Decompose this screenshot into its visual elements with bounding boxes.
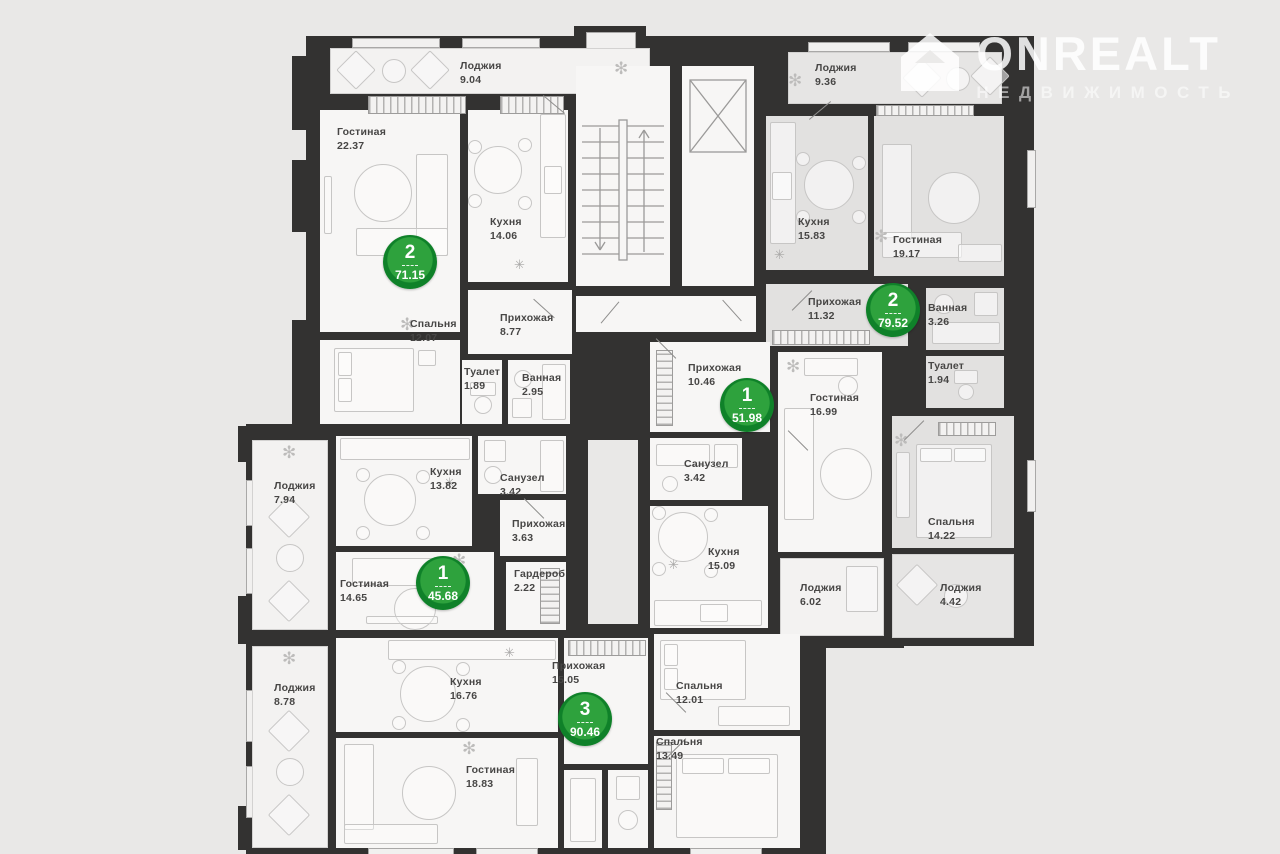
furniture-decor: 6.02 bbox=[800, 596, 821, 608]
apartment-total-area: 90.46 bbox=[570, 726, 600, 738]
window bbox=[1027, 460, 1036, 512]
furniture-decor: Туалет bbox=[928, 360, 964, 372]
plant-icon: ✻ bbox=[614, 60, 628, 77]
furniture-decor: 22.37 bbox=[337, 140, 364, 152]
room-bath bbox=[608, 770, 648, 848]
furniture-decor bbox=[336, 50, 376, 90]
furniture-decor bbox=[568, 640, 646, 656]
badge-divider bbox=[402, 265, 418, 266]
room-loggia bbox=[252, 440, 328, 630]
room-label: Гостиная19.17 bbox=[893, 234, 942, 261]
furniture-decor bbox=[820, 448, 872, 500]
vent-icon: ✳ bbox=[774, 248, 785, 261]
furniture-decor: 14.06 bbox=[490, 230, 517, 242]
wardrobe bbox=[938, 422, 996, 436]
furniture-decor: Гостиная bbox=[810, 392, 859, 404]
furniture-decor bbox=[784, 408, 814, 520]
window bbox=[476, 848, 538, 854]
room-label: Ванная2.95 bbox=[522, 372, 561, 399]
room-label: Прихожая11.32 bbox=[808, 296, 861, 323]
furniture-decor: 19.17 bbox=[893, 248, 920, 260]
stairwell bbox=[576, 66, 670, 286]
room-label: Лоджия6.02 bbox=[800, 582, 842, 609]
furniture-decor: 1.89 bbox=[464, 380, 485, 392]
furniture-decor: Кухня bbox=[450, 676, 482, 688]
furniture-decor bbox=[920, 448, 952, 462]
vent-icon: ✳ bbox=[668, 558, 679, 571]
furniture-decor bbox=[652, 562, 666, 576]
furniture-decor bbox=[928, 172, 980, 224]
furniture-decor bbox=[268, 794, 310, 836]
window bbox=[462, 38, 540, 48]
furniture-decor bbox=[954, 448, 986, 462]
window bbox=[352, 38, 440, 48]
furniture-decor: 1.94 bbox=[928, 374, 949, 386]
furniture-decor: 9.04 bbox=[460, 74, 481, 86]
furniture-decor bbox=[544, 166, 562, 194]
furniture-decor bbox=[276, 758, 304, 786]
room-label: Санузел3.42 bbox=[500, 472, 545, 499]
furniture-decor bbox=[664, 644, 678, 666]
furniture-decor: Ванная bbox=[522, 372, 561, 384]
furniture-decor bbox=[616, 776, 640, 800]
badge-divider bbox=[435, 586, 451, 587]
house-icon bbox=[898, 30, 962, 94]
vent-icon: ✳ bbox=[514, 258, 525, 271]
furniture-decor: 3.42 bbox=[500, 486, 521, 498]
room-loggia bbox=[252, 646, 328, 848]
apartment-rooms-count: 1 bbox=[742, 386, 753, 405]
room-label: Гостиная18.83 bbox=[466, 764, 515, 791]
plant-icon: ✻ bbox=[788, 72, 802, 89]
furniture-decor bbox=[344, 824, 438, 844]
furniture-decor: 9.36 bbox=[815, 76, 836, 88]
furniture-decor bbox=[852, 156, 866, 170]
furniture-decor bbox=[958, 244, 1002, 262]
logo-subtitle: НЕДВИЖИМОСТЬ bbox=[976, 83, 1240, 103]
furniture-decor: Санузел bbox=[500, 472, 545, 484]
furniture-decor: Ванная bbox=[928, 302, 967, 314]
plant-icon: ✻ bbox=[462, 740, 476, 757]
badge-divider bbox=[739, 408, 755, 409]
furniture-decor bbox=[474, 146, 522, 194]
furniture-decor bbox=[512, 398, 532, 418]
furniture-decor bbox=[340, 438, 470, 460]
furniture-decor bbox=[468, 194, 482, 208]
furniture-decor: Санузел bbox=[684, 458, 729, 470]
furniture-decor: 15.09 bbox=[708, 560, 735, 572]
room-label: Лоджия4.42 bbox=[940, 582, 982, 609]
furniture-decor: Кухня bbox=[490, 216, 522, 228]
furniture-decor: 12.07 bbox=[410, 332, 437, 344]
furniture-decor bbox=[276, 544, 304, 572]
furniture-decor bbox=[324, 176, 332, 234]
furniture-decor bbox=[704, 508, 718, 522]
furniture-decor bbox=[268, 710, 310, 752]
furniture-decor bbox=[652, 506, 666, 520]
furniture-decor: Спальня bbox=[410, 318, 457, 330]
furniture-decor bbox=[718, 706, 790, 726]
furniture-decor bbox=[852, 210, 866, 224]
apartment-badge[interactable]: 2 71.15 bbox=[383, 235, 437, 289]
room-label: Гардероб2.22 bbox=[514, 568, 565, 595]
window-sill bbox=[368, 96, 466, 114]
furniture-decor bbox=[570, 778, 596, 842]
furniture-decor: 18.83 bbox=[466, 778, 493, 790]
furniture-decor bbox=[595, 128, 605, 250]
wall-pillar bbox=[292, 320, 306, 428]
furniture-decor bbox=[416, 526, 430, 540]
room-label: Лоджия9.36 bbox=[815, 62, 857, 89]
plant-icon: ✻ bbox=[786, 358, 800, 375]
furniture-decor bbox=[690, 80, 746, 152]
onrealt-logo: ONREALT НЕДВИЖИМОСТЬ bbox=[898, 30, 1240, 103]
furniture-decor bbox=[882, 144, 912, 238]
room-label: Спальня13.49 bbox=[656, 736, 703, 763]
furniture-decor: 14.22 bbox=[928, 530, 955, 542]
furniture-decor bbox=[728, 758, 770, 774]
furniture-decor bbox=[804, 160, 854, 210]
furniture-decor bbox=[356, 526, 370, 540]
furniture-decor: 3.63 bbox=[512, 532, 533, 544]
apartment-rooms-count: 2 bbox=[405, 243, 416, 262]
furniture-decor: Спальня bbox=[656, 736, 703, 748]
window bbox=[1027, 150, 1036, 208]
furniture-decor: Спальня bbox=[676, 680, 723, 692]
furniture-decor bbox=[456, 662, 470, 676]
furniture-decor bbox=[772, 172, 792, 200]
room-label: Кухня13.82 bbox=[430, 466, 462, 493]
furniture-decor: Гостиная bbox=[466, 764, 515, 776]
furniture-decor: Кухня bbox=[798, 216, 830, 228]
furniture-decor: 7.94 bbox=[274, 494, 295, 506]
furniture-decor: Кухня bbox=[430, 466, 462, 478]
apartment-rooms-count: 3 bbox=[580, 700, 591, 719]
furniture-decor bbox=[354, 164, 412, 222]
room-label: Кухня15.09 bbox=[708, 546, 740, 573]
furniture-decor: 15.83 bbox=[798, 230, 825, 242]
apartment-total-area: 79.52 bbox=[878, 317, 908, 329]
room-living bbox=[778, 352, 882, 552]
room-kitchen bbox=[336, 638, 558, 732]
elevator-lobby bbox=[682, 66, 754, 286]
plant-icon: ✻ bbox=[282, 444, 296, 461]
furniture-decor: 3.26 bbox=[928, 316, 949, 328]
logo-brand: ONREALT bbox=[976, 30, 1240, 77]
furniture-decor bbox=[639, 130, 649, 252]
furniture-decor bbox=[796, 152, 810, 166]
furniture-decor: 15.05 bbox=[552, 674, 579, 686]
furniture-decor bbox=[392, 716, 406, 730]
furniture-decor: Туалет bbox=[464, 366, 500, 378]
logo-text: ONREALT НЕДВИЖИМОСТЬ bbox=[976, 30, 1240, 103]
furniture-decor bbox=[619, 120, 627, 260]
furniture-decor bbox=[468, 140, 482, 154]
furniture-decor bbox=[356, 468, 370, 482]
furniture-decor bbox=[896, 564, 938, 606]
furniture-decor bbox=[690, 80, 746, 152]
room-label: Туалет1.94 bbox=[928, 360, 964, 387]
furniture-decor: 14.65 bbox=[340, 592, 367, 604]
badge-divider bbox=[577, 722, 593, 723]
furniture-decor: 16.99 bbox=[810, 406, 837, 418]
furniture-decor: 2.22 bbox=[514, 582, 535, 594]
furniture-decor bbox=[700, 604, 728, 622]
room-label: Прихожая15.05 bbox=[552, 660, 605, 687]
furniture-decor bbox=[416, 470, 430, 484]
room-label: Прихожая3.63 bbox=[512, 518, 565, 545]
furniture-decor: 3.42 bbox=[684, 472, 705, 484]
furniture-decor: 8.77 bbox=[500, 326, 521, 338]
plant-icon: ✻ bbox=[874, 228, 888, 245]
wall-pillar bbox=[292, 160, 306, 232]
furniture-decor: Лоджия bbox=[815, 62, 857, 74]
window bbox=[808, 42, 890, 52]
room-label: Спальня12.07 bbox=[410, 318, 457, 345]
furniture-decor: Гостиная bbox=[337, 126, 386, 138]
furniture-decor bbox=[484, 440, 506, 462]
furniture-decor: Лоджия bbox=[800, 582, 842, 594]
wall-pillar bbox=[238, 596, 250, 644]
furniture-decor: Гостиная bbox=[340, 578, 389, 590]
stairs-icon bbox=[576, 66, 670, 286]
common-hallway bbox=[576, 296, 756, 332]
furniture-decor bbox=[382, 59, 406, 83]
apartment-badge[interactable]: 3 90.46 bbox=[558, 692, 612, 746]
furniture-decor: 2.95 bbox=[522, 386, 543, 398]
room-label: Кухня14.06 bbox=[490, 216, 522, 243]
room-label: Гостиная16.99 bbox=[810, 392, 859, 419]
furniture-decor bbox=[338, 378, 352, 402]
furniture-decor: 11.32 bbox=[808, 310, 835, 322]
plant-icon: ✻ bbox=[282, 650, 296, 667]
furniture-decor bbox=[364, 474, 416, 526]
room-label: Ванная3.26 bbox=[928, 302, 967, 329]
furniture-decor bbox=[392, 660, 406, 674]
wall-pillar bbox=[238, 426, 250, 462]
apartment-total-area: 45.68 bbox=[428, 590, 458, 602]
apartment-badge[interactable]: 1 45.68 bbox=[416, 556, 470, 610]
apartment-total-area: 71.15 bbox=[395, 269, 425, 281]
furniture-decor bbox=[268, 580, 310, 622]
furniture-decor: 13.49 bbox=[656, 750, 683, 762]
room-label: Туалет1.89 bbox=[464, 366, 500, 393]
furniture-decor bbox=[846, 566, 878, 612]
furniture-decor bbox=[456, 718, 470, 732]
wall-pillar bbox=[292, 56, 306, 130]
furniture-decor: 13.82 bbox=[430, 480, 457, 492]
wardrobe bbox=[656, 350, 673, 426]
furniture-decor bbox=[582, 120, 664, 260]
room-label: Спальня14.22 bbox=[928, 516, 975, 543]
furniture-decor: Прихожая bbox=[688, 362, 741, 374]
vent-icon: ✳ bbox=[504, 646, 515, 659]
badge-divider bbox=[885, 313, 901, 314]
apartment-badge[interactable]: 1 51.98 bbox=[720, 378, 774, 432]
furniture-decor bbox=[974, 292, 998, 316]
furniture-decor bbox=[518, 138, 532, 152]
furniture-decor: 16.76 bbox=[450, 690, 477, 702]
furniture-decor bbox=[474, 396, 492, 414]
furniture-decor: Прихожая bbox=[552, 660, 605, 672]
apartment-total-area: 51.98 bbox=[732, 412, 762, 424]
room-label: Кухня15.83 bbox=[798, 216, 830, 243]
elevator-icon bbox=[682, 66, 754, 286]
furniture-decor bbox=[402, 766, 456, 820]
furniture-decor bbox=[804, 358, 858, 376]
apartment-badge[interactable]: 2 79.52 bbox=[866, 283, 920, 337]
room-label: Санузел3.42 bbox=[684, 458, 729, 485]
furniture-decor: 10.46 bbox=[688, 376, 715, 388]
room-label: Лоджия9.04 bbox=[460, 60, 502, 87]
furniture-decor: 4.42 bbox=[940, 596, 961, 608]
furniture-decor: Лоджия bbox=[274, 682, 316, 694]
furniture-decor: Прихожая bbox=[500, 312, 553, 324]
furniture-decor: Гостиная bbox=[893, 234, 942, 246]
plant-icon: ✻ bbox=[894, 432, 908, 449]
furniture-decor bbox=[896, 452, 910, 518]
furniture-decor bbox=[658, 512, 708, 562]
furniture-decor: Прихожая bbox=[808, 296, 861, 308]
furniture-decor: Лоджия bbox=[460, 60, 502, 72]
window bbox=[368, 848, 454, 854]
window bbox=[690, 848, 762, 854]
furniture-decor: Спальня bbox=[928, 516, 975, 528]
furniture-decor bbox=[338, 352, 352, 376]
furniture-decor bbox=[518, 196, 532, 210]
room-label: Лоджия8.78 bbox=[274, 682, 316, 709]
furniture-decor bbox=[400, 666, 456, 722]
furniture-decor bbox=[516, 758, 538, 826]
furniture-decor bbox=[618, 810, 638, 830]
furniture-decor bbox=[418, 350, 436, 366]
room-label: Спальня12.01 bbox=[676, 680, 723, 707]
room-label: Гостиная14.65 bbox=[340, 578, 389, 605]
furniture-decor bbox=[344, 744, 374, 830]
room-label: Кухня16.76 bbox=[450, 676, 482, 703]
room-living bbox=[336, 738, 558, 848]
furniture-decor bbox=[410, 50, 450, 90]
window-sill bbox=[876, 105, 974, 116]
room-label: Прихожая8.77 bbox=[500, 312, 553, 339]
furniture-decor: 8.78 bbox=[274, 696, 295, 708]
room-label: Лоджия7.94 bbox=[274, 480, 316, 507]
room-bath bbox=[564, 770, 602, 848]
furniture-decor bbox=[662, 476, 678, 492]
wardrobe bbox=[772, 330, 870, 345]
apartment-rooms-count: 1 bbox=[438, 564, 449, 583]
room-bedroom bbox=[320, 340, 460, 424]
furniture-decor: Кухня bbox=[708, 546, 740, 558]
floor-plan: ✻ ✻ ✻ ✻ ✻ ✻ ✻ ✻ ✻ ✻ ✳ ✳ ✳ ✳ ✳ Лоджия9.04… bbox=[0, 0, 1280, 854]
furniture-decor: Прихожая bbox=[512, 518, 565, 530]
room-label: Гостиная22.37 bbox=[337, 126, 386, 153]
apartment-rooms-count: 2 bbox=[888, 291, 899, 310]
furniture-decor: Лоджия bbox=[274, 480, 316, 492]
furniture-decor: Гардероб bbox=[514, 568, 565, 580]
furniture-decor: 12.01 bbox=[676, 694, 703, 706]
furniture-decor bbox=[366, 616, 438, 624]
furniture-decor bbox=[388, 640, 556, 660]
furniture-decor: Лоджия bbox=[940, 582, 982, 594]
